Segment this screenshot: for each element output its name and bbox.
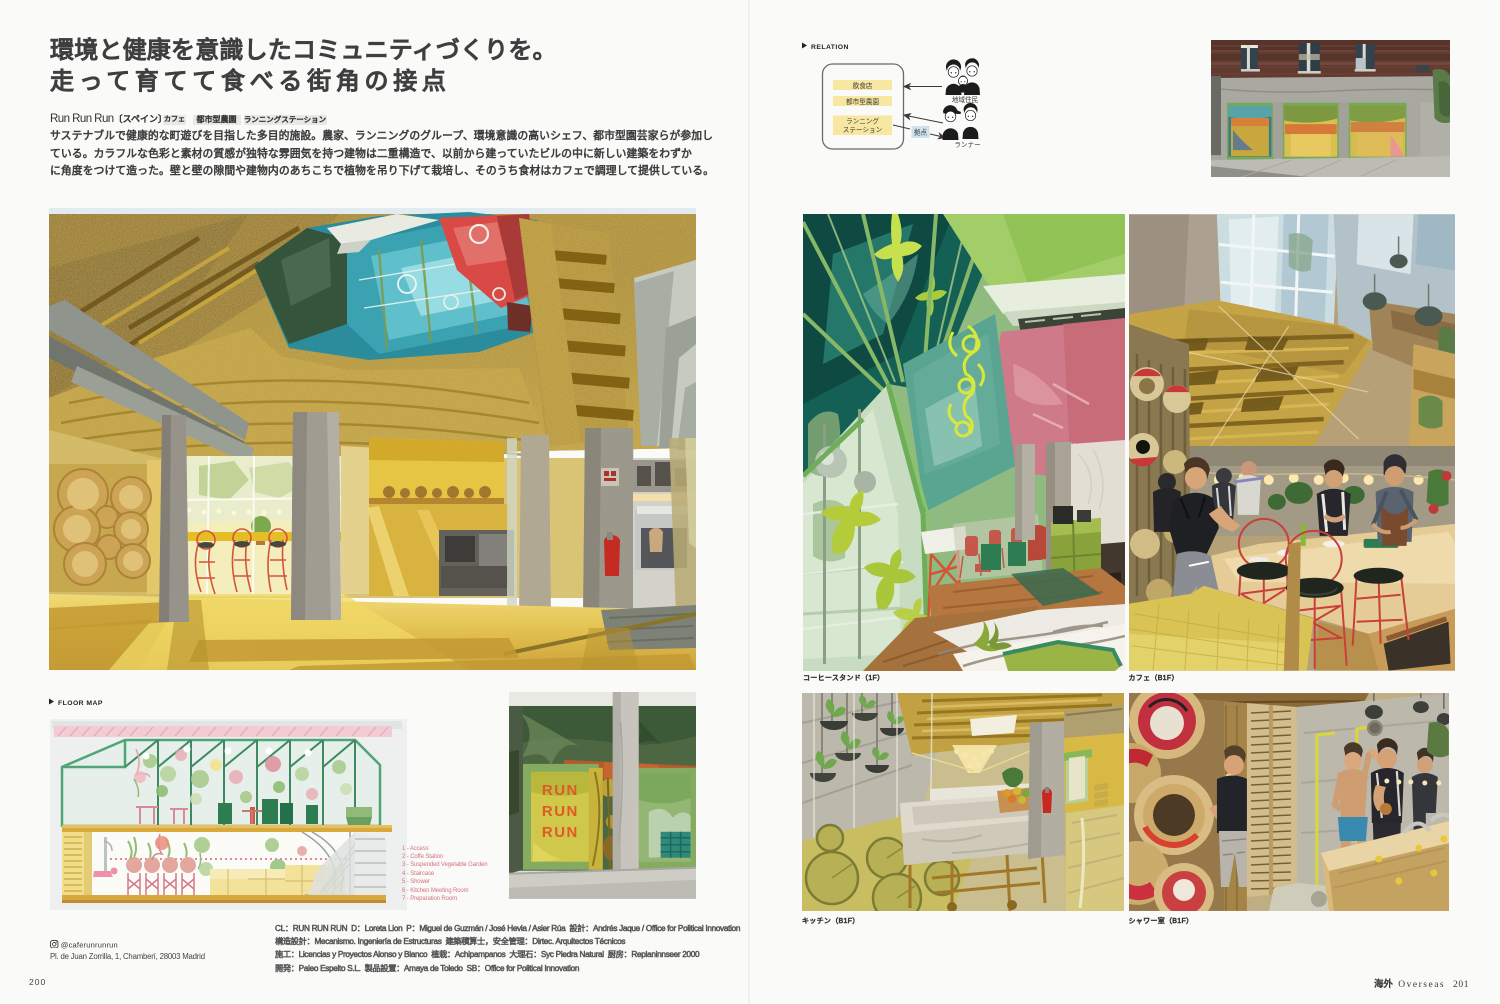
svg-text:RUN: RUN — [542, 824, 579, 841]
svg-text:飲食店: 飲食店 — [853, 81, 873, 90]
svg-text:ランニング: ランニング — [846, 117, 879, 126]
svg-text:RUN: RUN — [542, 803, 579, 820]
svg-text:ステーション: ステーション — [843, 126, 883, 134]
svg-text:都市型農園: 都市型農園 — [846, 97, 879, 106]
svg-text:ランナー: ランナー — [954, 141, 980, 149]
svg-text:地域住民: 地域住民 — [952, 95, 979, 104]
svg-text:拠点: 拠点 — [914, 128, 928, 137]
svg-text:RUN: RUN — [542, 782, 579, 799]
